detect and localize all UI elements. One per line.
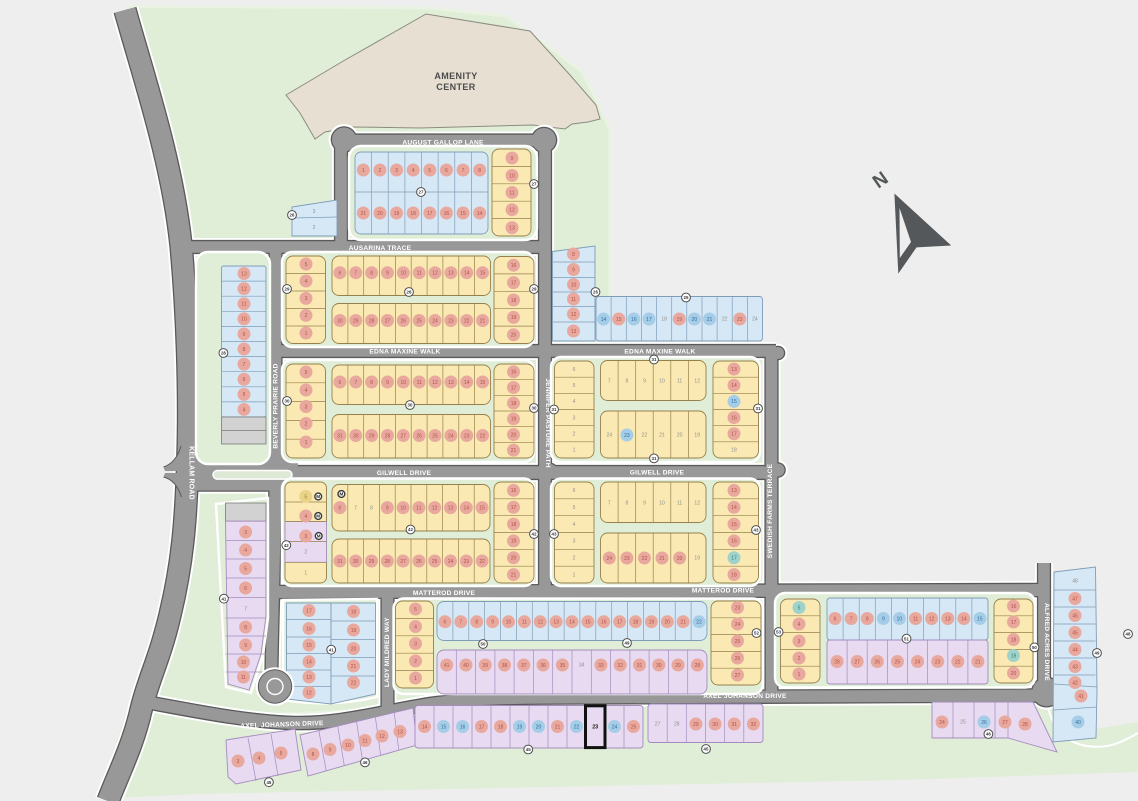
svg-text:48: 48: [1072, 579, 1078, 585]
svg-text:49: 49: [625, 641, 630, 646]
svg-text:7: 7: [608, 501, 611, 507]
svg-text:8: 8: [866, 616, 869, 622]
svg-text:11: 11: [522, 620, 527, 626]
svg-text:47: 47: [1072, 596, 1078, 602]
svg-text:7: 7: [608, 379, 611, 385]
svg-text:11: 11: [362, 738, 367, 744]
svg-text:22: 22: [480, 433, 486, 439]
svg-text:BEVERLY PRAIRIE ROAD: BEVERLY PRAIRIE ROAD: [273, 363, 280, 448]
svg-text:28: 28: [674, 722, 680, 728]
svg-text:21: 21: [555, 724, 561, 730]
svg-text:22: 22: [955, 659, 961, 665]
svg-text:35: 35: [560, 663, 566, 669]
svg-text:12: 12: [929, 616, 935, 622]
svg-text:2: 2: [798, 656, 801, 662]
svg-text:11: 11: [677, 379, 682, 385]
svg-text:26: 26: [416, 433, 422, 439]
svg-text:42: 42: [532, 532, 537, 537]
svg-text:15: 15: [479, 505, 485, 511]
svg-text:11: 11: [677, 501, 682, 507]
svg-text:18: 18: [410, 211, 416, 217]
svg-text:15: 15: [616, 317, 622, 323]
svg-text:26: 26: [735, 656, 741, 662]
svg-text:11: 11: [571, 297, 576, 303]
svg-text:4: 4: [305, 279, 308, 285]
svg-text:21: 21: [707, 317, 713, 323]
svg-text:29: 29: [285, 287, 290, 292]
svg-text:13: 13: [448, 380, 454, 386]
svg-text:8: 8: [243, 347, 246, 353]
svg-text:31: 31: [652, 456, 657, 461]
svg-text:27: 27: [655, 722, 661, 728]
svg-text:13: 13: [731, 367, 737, 373]
svg-text:16: 16: [1011, 604, 1017, 610]
svg-text:18: 18: [661, 317, 667, 323]
svg-text:29: 29: [369, 433, 375, 439]
svg-text:24: 24: [752, 317, 758, 323]
svg-text:27: 27: [532, 182, 537, 187]
svg-text:10: 10: [571, 282, 577, 288]
svg-text:24: 24: [448, 433, 454, 439]
svg-text:3: 3: [395, 168, 398, 174]
svg-text:29: 29: [353, 318, 359, 324]
svg-text:18: 18: [511, 401, 517, 407]
svg-text:3: 3: [573, 539, 576, 545]
svg-text:7: 7: [462, 168, 465, 174]
svg-text:12: 12: [432, 505, 438, 511]
svg-text:23: 23: [592, 725, 598, 731]
svg-text:23: 23: [464, 559, 470, 565]
svg-text:42: 42: [408, 527, 413, 532]
svg-text:3: 3: [304, 534, 307, 540]
svg-text:40: 40: [1075, 720, 1081, 726]
svg-text:10: 10: [401, 380, 407, 386]
svg-text:20: 20: [511, 432, 517, 438]
svg-text:20: 20: [692, 317, 698, 323]
svg-text:9: 9: [643, 501, 646, 507]
svg-text:28: 28: [385, 433, 391, 439]
svg-text:3: 3: [305, 404, 308, 410]
svg-text:19: 19: [511, 539, 517, 545]
svg-text:21: 21: [511, 448, 517, 454]
svg-text:GILWELL DRIVE: GILWELL DRIVE: [377, 470, 432, 477]
svg-text:30: 30: [337, 318, 343, 324]
svg-text:23: 23: [735, 605, 741, 611]
svg-text:48: 48: [1126, 632, 1131, 637]
svg-text:M: M: [316, 514, 320, 519]
svg-text:19: 19: [694, 556, 700, 562]
svg-text:26: 26: [875, 659, 881, 665]
svg-text:2: 2: [304, 550, 307, 556]
svg-text:10: 10: [506, 620, 512, 626]
svg-text:MATTEROD DRIVE: MATTEROD DRIVE: [692, 588, 755, 595]
svg-text:1: 1: [305, 440, 308, 446]
svg-text:13: 13: [553, 620, 559, 626]
svg-text:2: 2: [573, 431, 576, 437]
svg-text:5: 5: [798, 605, 801, 611]
svg-text:43: 43: [1072, 664, 1078, 670]
svg-text:18: 18: [511, 522, 517, 528]
svg-text:52: 52: [754, 631, 759, 636]
svg-text:21: 21: [361, 211, 367, 217]
svg-text:11: 11: [417, 380, 422, 386]
svg-text:46: 46: [363, 760, 368, 765]
svg-text:14: 14: [464, 505, 470, 511]
svg-text:22: 22: [642, 433, 648, 439]
svg-text:1: 1: [305, 331, 308, 337]
svg-text:14: 14: [961, 616, 967, 622]
svg-text:5: 5: [305, 262, 308, 268]
svg-text:10: 10: [400, 505, 406, 511]
svg-text:13: 13: [571, 329, 577, 335]
svg-text:21: 21: [480, 318, 486, 324]
svg-text:12: 12: [694, 501, 700, 507]
svg-text:1: 1: [414, 676, 417, 682]
svg-text:AMENITY: AMENITY: [434, 71, 477, 81]
svg-text:25: 25: [684, 295, 689, 300]
svg-text:3: 3: [305, 296, 308, 302]
svg-text:8: 8: [370, 505, 373, 511]
svg-text:17: 17: [617, 620, 623, 626]
svg-text:31: 31: [552, 407, 557, 412]
svg-text:51: 51: [904, 636, 909, 641]
svg-text:24: 24: [915, 659, 921, 665]
svg-text:25: 25: [432, 433, 438, 439]
svg-text:15: 15: [480, 380, 486, 386]
svg-text:24: 24: [607, 433, 613, 439]
svg-text:41: 41: [1078, 694, 1084, 700]
svg-text:5: 5: [305, 370, 308, 376]
svg-text:15: 15: [480, 271, 486, 277]
svg-text:27: 27: [735, 673, 741, 679]
svg-text:29: 29: [532, 287, 537, 292]
svg-text:16: 16: [460, 724, 466, 730]
svg-text:24: 24: [432, 318, 438, 324]
svg-text:44: 44: [1072, 647, 1078, 653]
svg-text:GILWELL DRIVE: GILWELL DRIVE: [630, 470, 685, 477]
svg-text:27: 27: [419, 190, 424, 195]
svg-text:25: 25: [432, 559, 438, 565]
svg-text:12: 12: [509, 208, 515, 214]
svg-text:45: 45: [1072, 630, 1078, 636]
svg-text:6: 6: [444, 620, 447, 626]
svg-text:CENTER: CENTER: [436, 82, 476, 92]
svg-text:31: 31: [637, 663, 643, 669]
svg-text:5: 5: [414, 607, 417, 613]
svg-text:23: 23: [448, 318, 454, 324]
svg-text:15: 15: [977, 616, 983, 622]
svg-text:23: 23: [737, 317, 743, 323]
svg-text:3: 3: [237, 759, 240, 765]
svg-text:17: 17: [511, 280, 517, 286]
svg-text:16: 16: [511, 263, 517, 269]
svg-text:11: 11: [417, 271, 422, 277]
svg-text:45: 45: [704, 747, 709, 752]
svg-text:9: 9: [643, 379, 646, 385]
svg-text:7: 7: [354, 271, 357, 277]
svg-text:M: M: [317, 534, 321, 539]
svg-text:9: 9: [511, 156, 514, 162]
svg-text:5: 5: [243, 392, 246, 398]
svg-text:16: 16: [444, 211, 450, 217]
svg-text:24: 24: [607, 556, 613, 562]
svg-text:19: 19: [1011, 653, 1017, 659]
svg-text:17: 17: [511, 505, 517, 511]
svg-text:50: 50: [481, 642, 486, 647]
svg-text:26: 26: [593, 290, 598, 295]
svg-text:10: 10: [659, 379, 665, 385]
svg-text:7: 7: [354, 505, 357, 511]
svg-text:8: 8: [572, 252, 575, 258]
svg-text:AUGUST GALLOP LANE: AUGUST GALLOP LANE: [402, 139, 484, 146]
svg-text:7: 7: [243, 362, 246, 368]
svg-text:8: 8: [370, 271, 373, 277]
svg-text:5: 5: [573, 383, 576, 389]
svg-text:3: 3: [573, 415, 576, 421]
svg-text:28: 28: [385, 559, 391, 565]
svg-text:14: 14: [731, 505, 737, 511]
svg-text:16: 16: [731, 415, 737, 421]
svg-text:17: 17: [427, 211, 433, 217]
svg-text:12: 12: [306, 690, 312, 696]
svg-text:29: 29: [675, 663, 681, 669]
svg-text:14: 14: [601, 317, 607, 323]
svg-text:30: 30: [712, 722, 718, 728]
svg-text:9: 9: [243, 332, 246, 338]
svg-text:42: 42: [284, 543, 289, 548]
svg-text:22: 22: [351, 680, 357, 686]
svg-text:24: 24: [939, 720, 945, 726]
svg-text:23: 23: [464, 433, 470, 439]
svg-text:23: 23: [624, 433, 630, 439]
svg-text:1: 1: [573, 448, 576, 454]
svg-text:32: 32: [751, 722, 757, 728]
svg-text:30: 30: [285, 399, 290, 404]
svg-text:5: 5: [428, 168, 431, 174]
svg-text:46: 46: [986, 732, 991, 737]
svg-text:20: 20: [677, 556, 683, 562]
svg-text:15: 15: [306, 643, 312, 649]
svg-text:20: 20: [536, 724, 542, 730]
svg-text:42: 42: [1072, 680, 1078, 686]
svg-text:6: 6: [339, 380, 342, 386]
svg-text:1: 1: [798, 672, 801, 678]
svg-text:28: 28: [369, 318, 375, 324]
svg-text:19: 19: [676, 317, 682, 323]
svg-text:26: 26: [401, 318, 407, 324]
svg-text:32: 32: [617, 663, 623, 669]
svg-text:8: 8: [625, 379, 628, 385]
svg-text:12: 12: [241, 286, 247, 292]
svg-text:26: 26: [416, 559, 422, 565]
svg-text:36: 36: [540, 663, 546, 669]
svg-text:34: 34: [579, 663, 585, 669]
svg-text:8: 8: [312, 752, 315, 758]
svg-text:6: 6: [244, 586, 247, 592]
svg-text:M: M: [316, 494, 320, 499]
svg-text:17: 17: [479, 724, 485, 730]
svg-text:LADY MILDRED WAY: LADY MILDRED WAY: [384, 617, 391, 687]
svg-text:19: 19: [511, 315, 517, 321]
svg-text:33: 33: [598, 663, 604, 669]
svg-text:20: 20: [377, 211, 383, 217]
svg-text:9: 9: [386, 271, 389, 277]
svg-text:M: M: [339, 492, 343, 497]
svg-text:18: 18: [511, 298, 517, 304]
svg-text:27: 27: [400, 559, 406, 565]
svg-text:13: 13: [397, 729, 403, 735]
svg-text:26: 26: [290, 213, 295, 218]
svg-text:13: 13: [509, 225, 515, 231]
svg-text:AXEL JOHANSON DRIVE: AXEL JOHANSON DRIVE: [703, 693, 787, 700]
svg-text:18: 18: [731, 448, 737, 454]
svg-text:7: 7: [459, 620, 462, 626]
svg-text:14: 14: [731, 383, 737, 389]
svg-text:21: 21: [659, 433, 665, 439]
svg-text:24: 24: [612, 724, 618, 730]
svg-text:50: 50: [1032, 645, 1037, 650]
svg-text:16: 16: [511, 370, 517, 376]
svg-text:9: 9: [386, 505, 389, 511]
svg-text:8: 8: [625, 501, 628, 507]
svg-text:3: 3: [414, 641, 417, 647]
svg-text:41: 41: [221, 596, 226, 601]
svg-text:28: 28: [1022, 722, 1028, 728]
svg-text:11: 11: [913, 616, 918, 622]
svg-text:24: 24: [735, 622, 741, 628]
svg-text:12: 12: [571, 312, 577, 318]
svg-text:5: 5: [244, 566, 247, 572]
svg-text:20: 20: [511, 333, 517, 339]
svg-text:18: 18: [731, 572, 737, 578]
svg-text:9: 9: [329, 747, 332, 753]
svg-text:3: 3: [313, 209, 316, 215]
svg-text:28: 28: [695, 663, 701, 669]
svg-text:13: 13: [731, 488, 737, 494]
svg-text:14: 14: [306, 660, 312, 666]
svg-text:4: 4: [573, 399, 576, 405]
svg-text:15: 15: [731, 522, 737, 528]
svg-text:4: 4: [573, 522, 576, 528]
svg-text:17: 17: [731, 556, 737, 562]
svg-text:25: 25: [895, 659, 901, 665]
svg-text:37: 37: [521, 663, 527, 669]
svg-text:20: 20: [1011, 671, 1017, 677]
svg-text:17: 17: [511, 385, 517, 391]
svg-text:15: 15: [441, 724, 447, 730]
svg-text:8: 8: [370, 380, 373, 386]
svg-text:4: 4: [244, 548, 247, 554]
svg-text:19: 19: [351, 628, 357, 634]
svg-text:12: 12: [432, 271, 438, 277]
svg-text:22: 22: [479, 559, 485, 565]
svg-text:25: 25: [960, 720, 966, 726]
svg-text:22: 22: [574, 724, 580, 730]
svg-text:20: 20: [665, 620, 671, 626]
svg-text:31: 31: [731, 722, 737, 728]
svg-text:13: 13: [945, 616, 951, 622]
svg-text:4: 4: [304, 514, 307, 520]
svg-text:10: 10: [401, 271, 407, 277]
svg-text:9: 9: [572, 267, 575, 273]
svg-text:SWEDISH FARMS TERRACE: SWEDISH FARMS TERRACE: [767, 463, 774, 558]
svg-text:40: 40: [463, 663, 469, 669]
svg-text:4: 4: [243, 407, 246, 413]
svg-text:43: 43: [754, 528, 759, 533]
svg-text:27: 27: [854, 659, 860, 665]
svg-text:4: 4: [258, 756, 261, 762]
svg-text:19: 19: [511, 417, 517, 423]
svg-text:6: 6: [445, 168, 448, 174]
svg-text:30: 30: [656, 663, 662, 669]
svg-text:1: 1: [362, 168, 365, 174]
svg-text:43: 43: [552, 532, 557, 537]
svg-text:21: 21: [659, 556, 665, 562]
svg-text:16: 16: [601, 620, 607, 626]
svg-text:JENNIFER PASTURE PATH: JENNIFER PASTURE PATH: [544, 378, 551, 468]
svg-text:8: 8: [475, 620, 478, 626]
svg-text:10: 10: [509, 173, 515, 179]
svg-text:27: 27: [385, 318, 391, 324]
svg-text:30: 30: [532, 406, 537, 411]
svg-text:16: 16: [511, 488, 517, 494]
svg-text:41: 41: [444, 663, 450, 669]
svg-text:8: 8: [478, 168, 481, 174]
svg-text:22: 22: [722, 317, 728, 323]
svg-text:25: 25: [631, 724, 637, 730]
svg-text:18: 18: [351, 609, 357, 615]
svg-text:15: 15: [460, 211, 466, 217]
svg-text:EDNA MAXINE WALK: EDNA MAXINE WALK: [369, 349, 440, 356]
svg-text:17: 17: [306, 608, 312, 614]
svg-text:20: 20: [511, 556, 517, 562]
svg-text:7: 7: [354, 380, 357, 386]
svg-text:19: 19: [694, 433, 700, 439]
svg-text:6: 6: [339, 271, 342, 277]
svg-text:45: 45: [266, 780, 271, 785]
svg-text:21: 21: [351, 664, 357, 670]
svg-text:10: 10: [241, 660, 247, 666]
svg-text:24: 24: [448, 559, 454, 565]
svg-text:16: 16: [631, 317, 637, 323]
svg-text:19: 19: [394, 211, 400, 217]
svg-text:19: 19: [517, 724, 523, 730]
svg-text:15: 15: [585, 620, 591, 626]
svg-text:14: 14: [464, 271, 470, 277]
svg-text:22: 22: [464, 318, 470, 324]
svg-text:13: 13: [448, 505, 454, 511]
svg-text:30: 30: [408, 403, 413, 408]
svg-text:6: 6: [834, 616, 837, 622]
svg-text:2: 2: [305, 313, 308, 319]
svg-text:EDNA MAXINE WALK: EDNA MAXINE WALK: [624, 349, 695, 356]
svg-text:27: 27: [401, 433, 407, 439]
svg-text:10: 10: [241, 317, 247, 323]
svg-text:12: 12: [694, 379, 700, 385]
svg-text:18: 18: [633, 620, 639, 626]
svg-text:31: 31: [756, 406, 761, 411]
svg-text:6: 6: [339, 505, 342, 511]
svg-text:14: 14: [422, 724, 428, 730]
svg-text:12: 12: [379, 734, 385, 740]
svg-text:4: 4: [412, 168, 415, 174]
svg-text:9: 9: [386, 380, 389, 386]
svg-text:2: 2: [305, 421, 308, 427]
svg-text:MATTEROD DRIVE: MATTEROD DRIVE: [413, 590, 476, 597]
svg-text:16: 16: [306, 626, 312, 632]
svg-text:39: 39: [482, 663, 488, 669]
svg-text:AUSARINA TRACE: AUSARINA TRACE: [349, 245, 412, 252]
